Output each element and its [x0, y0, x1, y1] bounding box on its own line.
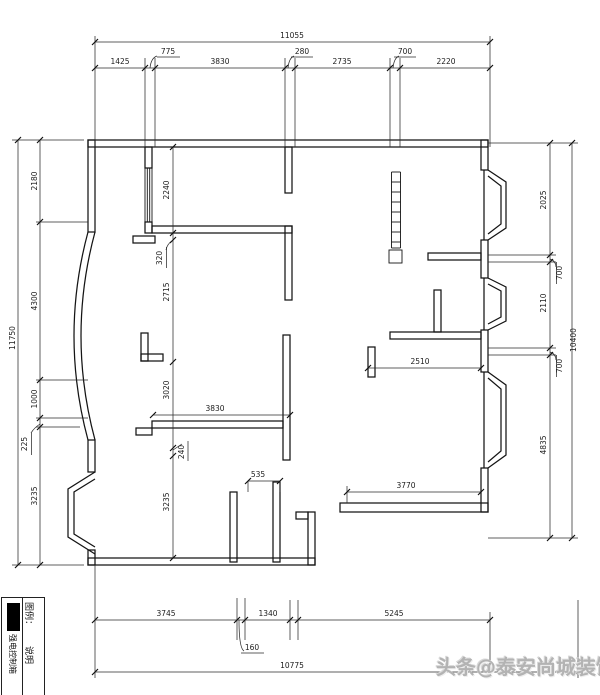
window-hatches: [145, 168, 402, 263]
dim-top-total: 11055: [280, 31, 304, 40]
legend-item-desc: 强电控制箱: [7, 634, 18, 674]
dim-bottom-4: 5245: [384, 609, 403, 618]
dim-bottom-1: 3745: [156, 609, 175, 618]
dim-int-2240: 2240: [162, 180, 171, 199]
dim-left-2: 4300: [30, 291, 39, 310]
right-bay1-outer: [488, 170, 506, 240]
dim-top-5: 2735: [332, 57, 351, 66]
dim-bottom-total: 10775: [280, 661, 304, 670]
strong-electric-box-symbol: [7, 603, 20, 631]
dim-right-1: 2025: [539, 190, 548, 209]
right-bay2-inner: [488, 284, 501, 324]
outer-walls: [68, 140, 506, 565]
right-bay1-inner: [488, 176, 501, 234]
left-bay-window-outer: [68, 472, 95, 554]
legend-header: 图例：: [23, 602, 36, 629]
right-bay3-inner: [488, 378, 501, 462]
dim-right-5: 4835: [539, 435, 548, 454]
dim-right-total: 10400: [569, 328, 578, 352]
dim-top-7: 2220: [436, 57, 455, 66]
column-box: [389, 250, 402, 263]
dim-bottom-2: 160: [245, 643, 260, 652]
dim-left-1: 2180: [30, 171, 39, 190]
dim-int-2715: 2715: [162, 282, 171, 301]
curved-wall-inner: [81, 232, 95, 440]
dim-int-535: 535: [251, 470, 266, 479]
dim-top-2: 775: [161, 47, 176, 56]
dim-int-3830: 3830: [205, 404, 224, 413]
floor-plan-page: 11055 1425 775 3830 280 2735 700 2220 11…: [0, 0, 600, 695]
watermark: 头条@泰安尚城装饰: [436, 651, 600, 680]
dim-top-4: 280: [295, 47, 310, 56]
left-bay-window-inner: [74, 479, 95, 547]
dim-right-3: 2110: [539, 293, 548, 312]
dimension-ticks: [15, 39, 581, 675]
dim-top-3: 3830: [210, 57, 229, 66]
dim-int-2510: 2510: [410, 357, 429, 366]
dim-left-4: 225: [20, 437, 29, 452]
dim-left-5: 3235: [30, 486, 39, 505]
dim-int-240: 240: [177, 445, 186, 460]
dim-int-3770: 3770: [396, 481, 415, 490]
dim-right-2: 700: [555, 266, 564, 281]
dim-top-6: 700: [398, 47, 413, 56]
dimension-labels: 11055 1425 775 3830 280 2735 700 2220 11…: [8, 31, 578, 670]
dim-right-4: 700: [555, 359, 564, 374]
dim-bottom-3: 1340: [258, 609, 277, 618]
dim-int-320: 320: [155, 251, 164, 266]
legend-desc-header: 说明: [23, 646, 36, 664]
dim-int-3235: 3235: [162, 492, 171, 511]
floor-plan-drawing: 11055 1425 775 3830 280 2735 700 2220 11…: [0, 0, 600, 695]
interior-walls: [133, 147, 481, 562]
dimension-lines: [12, 36, 578, 678]
dim-left-3: 1000: [30, 389, 39, 408]
dim-top-1: 1425: [110, 57, 129, 66]
legend-title-block: 图例： 说明 强电控制箱: [1, 597, 45, 695]
dim-left-total: 11750: [8, 326, 17, 350]
dim-int-3020: 3020: [162, 380, 171, 399]
